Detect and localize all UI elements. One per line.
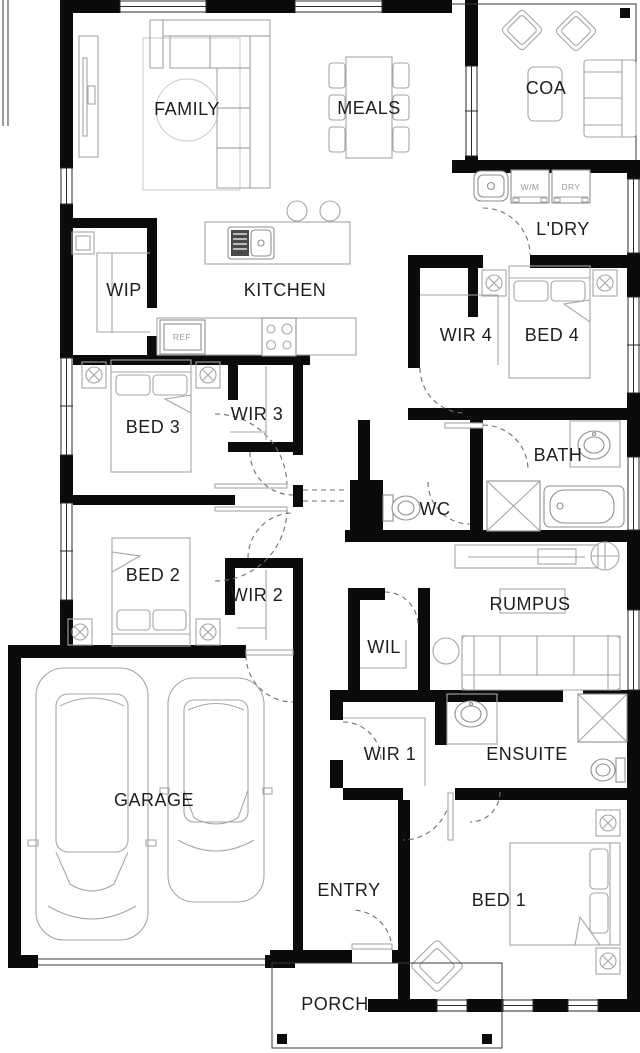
window [627, 610, 640, 690]
door-arc-laundry [483, 208, 530, 255]
room-label-bed1: BED 1 [472, 890, 527, 910]
room-label-bed2: BED 2 [126, 565, 181, 585]
room-label-rumpus: RUMPUS [489, 594, 570, 614]
room-label-porch: PORCH [301, 994, 369, 1014]
wc-sight-line [303, 490, 346, 501]
room-label-wir4: WIR 4 [440, 325, 493, 345]
window [503, 999, 533, 1012]
window [295, 0, 382, 13]
window [120, 0, 206, 13]
door-arc-wil [385, 592, 418, 625]
room-label-garage: GARAGE [114, 790, 194, 810]
room-label-entry: ENTRY [317, 880, 380, 900]
bedside-table [196, 619, 220, 645]
window [465, 66, 478, 156]
room-label-ldry: L'DRY [536, 219, 590, 239]
room-label-meals: MEALS [337, 98, 401, 118]
window [437, 999, 467, 1012]
floor-plan-page: FAMILY MEALS COA L'DRY W/M DRY WIP KITCH… [0, 0, 640, 1053]
window [627, 297, 640, 393]
bed4-furniture [420, 266, 617, 378]
room-label-coa: COA [526, 78, 567, 98]
window [60, 168, 73, 204]
room-label-bed4: BED 4 [525, 325, 580, 345]
porch-post [277, 1034, 287, 1044]
bedside-table [593, 270, 617, 296]
porch-post [482, 1034, 492, 1044]
room-label-wir2: WIR 2 [231, 585, 284, 605]
site-boundary [3, 0, 8, 126]
bedside-table [82, 362, 106, 388]
room-label-bath: BATH [534, 445, 583, 465]
room-label-kitchen: KITCHEN [244, 280, 327, 300]
window [627, 179, 640, 253]
window [627, 457, 640, 530]
door-arc-garage [246, 650, 293, 702]
door-arc-bed1 [403, 793, 453, 840]
room-label-ensuite: ENSUITE [486, 744, 568, 764]
door-arc-front [352, 910, 392, 950]
garage-cars [28, 668, 272, 965]
floor-plan-svg: FAMILY MEALS COA L'DRY W/M DRY WIP KITCH… [0, 0, 640, 1053]
label-wm: W/M [521, 182, 540, 192]
hall-double-door-leaf [215, 507, 287, 511]
window [60, 358, 73, 455]
window [60, 503, 73, 600]
bedside-table [196, 362, 220, 388]
bedroom-chair [410, 939, 464, 993]
label-ref: REF [173, 332, 191, 342]
door-arc-bed4 [420, 368, 465, 413]
window [568, 999, 598, 1012]
wir2-shelf [237, 570, 266, 640]
room-label-family: FAMILY [154, 99, 220, 119]
label-dry: DRY [562, 182, 581, 192]
coa-furniture [501, 9, 636, 137]
garage-door-line [38, 959, 265, 965]
room-label-wip: WIP [106, 280, 142, 300]
room-label-bed3: BED 3 [126, 417, 181, 437]
room-label-wil: WIL [367, 637, 401, 657]
hall-double-door-leaf [215, 484, 287, 488]
rumpus-furniture [360, 542, 620, 690]
room-label-wir3: WIR 3 [231, 404, 284, 424]
bedside-table [482, 270, 506, 296]
door-arc-bath [445, 423, 528, 470]
room-labels: FAMILY MEALS COA L'DRY W/M DRY WIP KITCH… [106, 78, 590, 1014]
ensuite-fixtures [343, 694, 627, 786]
bedside-table [596, 810, 620, 836]
bedside-table [596, 948, 620, 974]
room-label-wc: WC [420, 499, 451, 519]
room-label-wir1: WIR 1 [364, 744, 417, 764]
